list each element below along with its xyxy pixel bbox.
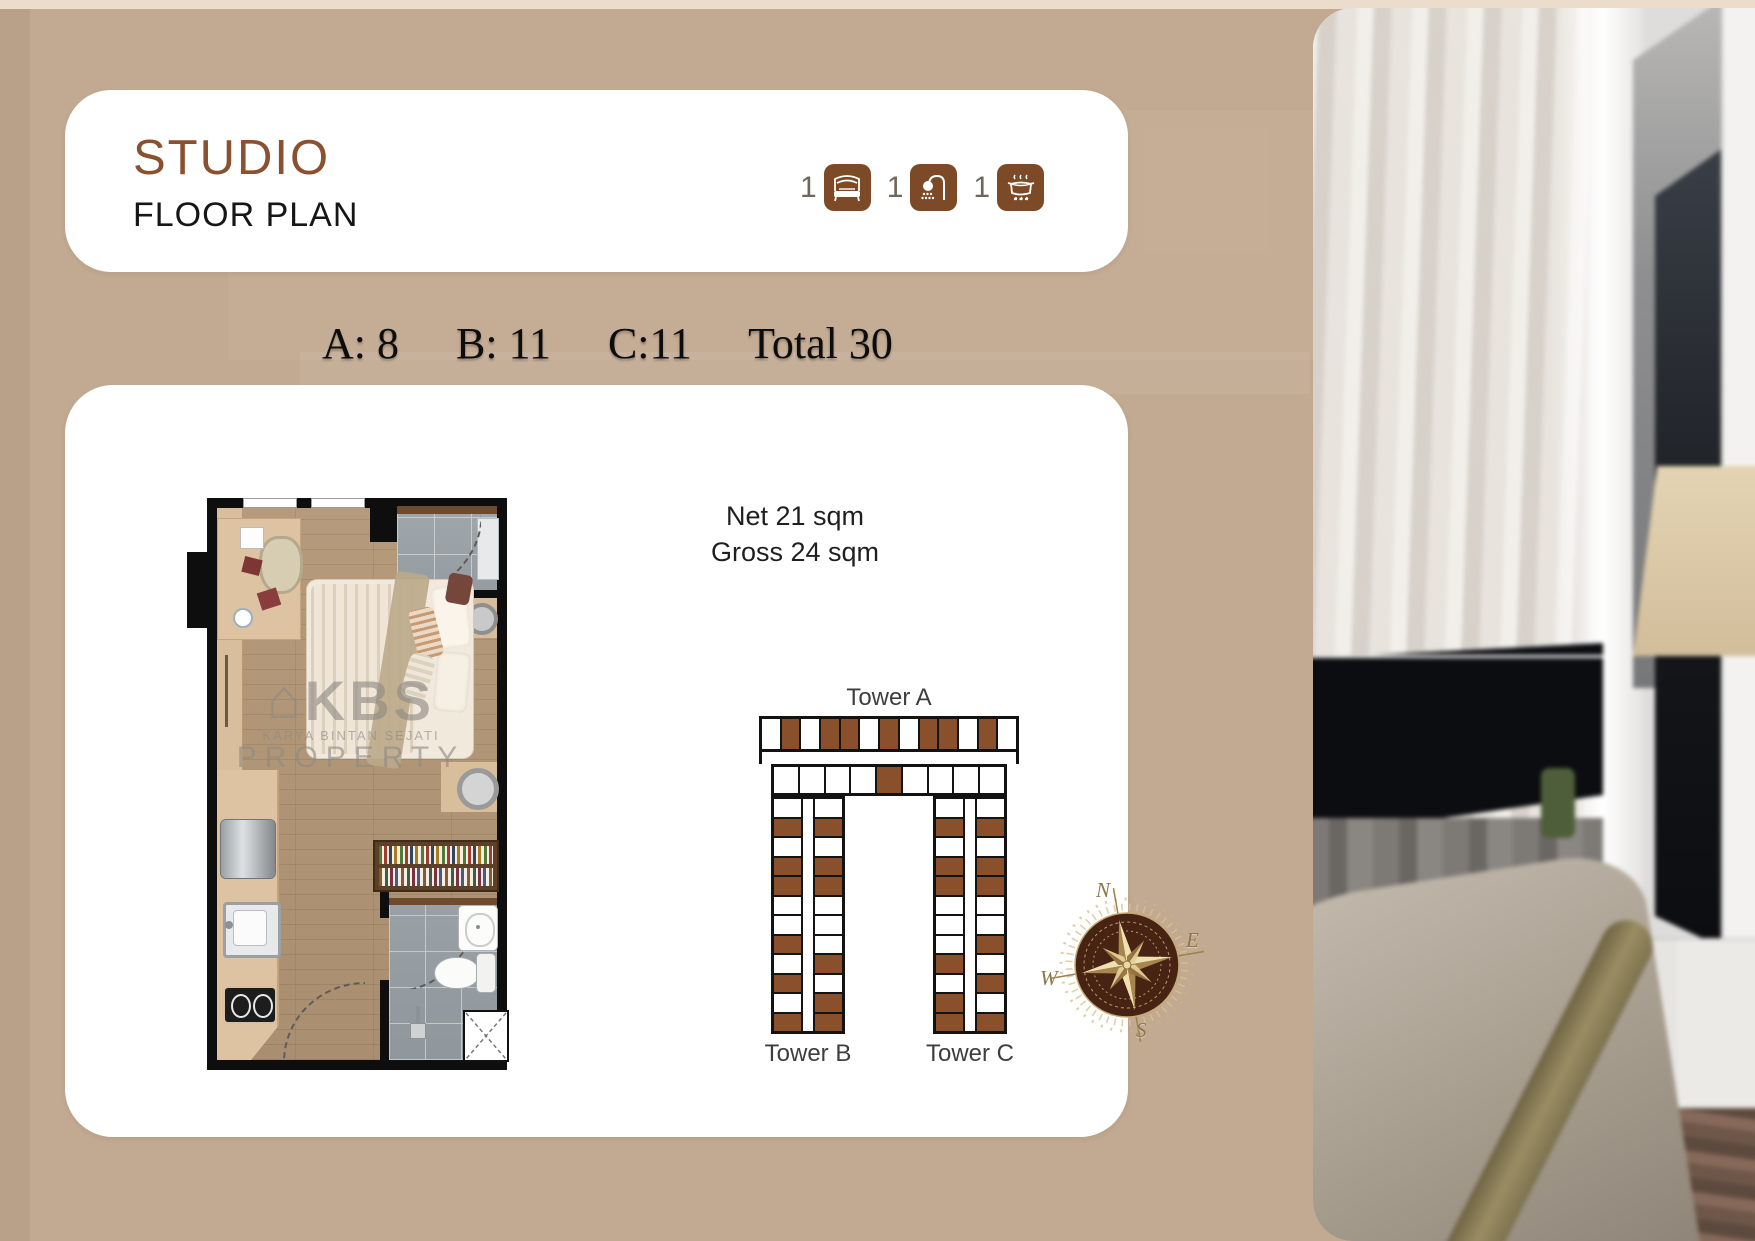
plan-shower-drain [411,1024,425,1038]
tower-unit-cell [977,838,1004,858]
tower-unit-cell [815,877,842,897]
tower-unit-cell [774,799,801,819]
tower-unit-cell [977,1014,1004,1032]
interior-photo-layers [1313,8,1755,1241]
tower-unit-cell [782,719,802,749]
brochure-page: STUDIO FLOOR PLAN 1 1 [0,0,1755,1241]
plan-bathroom-lintel [389,898,497,905]
feature-bedroom: 1 [800,164,871,211]
bathroom-count: 1 [887,171,904,205]
tower-unit-cell [959,719,979,749]
tower-unit-cell [977,877,1004,897]
compass-south: S [1136,1018,1147,1043]
plan-shower-stem [416,1006,420,1024]
header-card: STUDIO FLOOR PLAN 1 1 [65,90,1128,272]
plan-wall-stub [380,980,389,1070]
tower-unit-cell [774,767,800,793]
feature-bathroom: 1 [887,164,958,211]
tower-corridor [759,752,1019,764]
feature-kitchen: 1 [973,164,1044,211]
tower-a-label: Tower A [759,684,1019,712]
unit-count-total: Total 30 [748,319,893,368]
tower-unit-cell [936,1014,963,1032]
tower-unit-cell [977,819,1004,839]
tower-b-inner-col [813,799,842,1031]
tower-unit-cell [851,767,877,793]
tower-unit-cell [977,799,1004,819]
tower-unit-cell [980,767,1004,793]
tower-unit-cell [815,936,842,956]
tower-unit-cell [936,819,963,839]
tower-c-corridor [965,799,975,1031]
plan-dark-pillow [445,572,474,606]
bed-icon [824,164,871,211]
tower-unit-cell [815,975,842,995]
tower-unit-cell [929,767,955,793]
tower-unit-cell [977,936,1004,956]
plan-toilet-bowl [435,958,479,988]
tower-unit-cell [877,767,903,793]
tower-unit-cell [939,719,959,749]
tower-unit-cell [774,858,801,878]
compass-north: N [1096,878,1110,903]
tower-unit-cell [936,838,963,858]
plan-bath-sink [459,906,497,950]
tower-unit-cell [900,719,920,749]
tower-b-outer-col [774,799,803,1031]
tower-unit-cell [774,819,801,839]
plan-window [243,498,297,508]
tower-unit-cell [815,955,842,975]
tower-b-label: Tower B [744,1040,872,1068]
tower-unit-cell [977,994,1004,1014]
tower-b-corridor [803,799,813,1031]
tower-unit-cell [800,767,826,793]
plan-watermark: ⌂KBS KARYA BINTAN SEJATI PROPERTY [221,676,481,773]
tower-unit-cell [774,916,801,936]
tower-unit-cell [977,975,1004,995]
plan-bookshelf [375,842,497,890]
tower-unit-cell [815,897,842,917]
plan-kitchen-sink [223,902,281,958]
plan-toilet-tank [477,954,495,992]
tower-unit-cell [920,719,940,749]
tower-unit-cell [860,719,880,749]
plan-door-arc-main [281,980,365,1060]
tower-unit-cell [954,767,980,793]
tower-unit-cell [998,719,1016,749]
tower-unit-cell [815,838,842,858]
tower-unit-cell [936,936,963,956]
tower-b-leg [771,796,845,1034]
page-title: STUDIO [133,130,330,186]
plan-window [311,498,365,508]
plan-cup [233,608,253,628]
plan-fridge [221,820,275,878]
unit-count-b: B: 11 [456,319,551,368]
tower-unit-cell [903,767,929,793]
floor-plan: ⌂KBS KARYA BINTAN SEJATI PROPERTY [185,440,517,1080]
plan-chair [259,536,303,594]
tower-unit-cell [774,877,801,897]
plan-shaft [465,1012,507,1060]
tower-unit-cell [977,916,1004,936]
tower-unit-cell [977,955,1004,975]
tower-unit-cell [762,719,782,749]
tower-unit-cell [826,767,852,793]
tower-unit-cell [774,838,801,858]
tower-unit-cell [774,897,801,917]
tower-unit-cell [977,897,1004,917]
tower-unit-cell [774,955,801,975]
compass-west: W [1040,966,1058,991]
tower-unit-cell [841,719,861,749]
tower-unit-cell [880,719,900,749]
tower-unit-cell [936,897,963,917]
tower-a-row2 [771,764,1007,796]
tower-unit-cell [774,1014,801,1032]
tower-unit-cell [774,936,801,956]
tower-unit-cell [815,799,842,819]
tower-unit-cell [815,858,842,878]
tower-unit-cell [936,877,963,897]
kitchen-icon [997,164,1044,211]
unit-count-c: C:11 [608,319,692,368]
bedroom-count: 1 [800,171,817,205]
unit-count-a: A: 8 [322,319,399,368]
tower-c-label: Tower C [906,1040,1034,1068]
plan-stove [225,988,275,1022]
page-subtitle: FLOOR PLAN [133,196,358,235]
feature-list: 1 1 [800,164,1044,211]
tower-unit-cell [774,975,801,995]
tower-a-row [759,716,1019,752]
net-area: Net 21 sqm [640,498,950,534]
tower-unit-cell [936,955,963,975]
plan-papers [241,528,263,548]
compass-rose: N E W S [1032,870,1222,1060]
tower-unit-cell [821,719,841,749]
tower-unit-cell [815,994,842,1014]
plan-wall-pier [370,498,397,542]
watermark-brand: KBS [305,669,435,732]
watermark-line2: PROPERTY [221,743,481,773]
tower-unit-cell [815,819,842,839]
tower-unit-cell [979,719,999,749]
compass-icon [1032,870,1222,1060]
tower-c-inner-col [936,799,965,1031]
kitchen-count: 1 [973,171,990,205]
plan-wall-stub [380,892,389,918]
tower-unit-cell [801,719,821,749]
tower-unit-cell [936,994,963,1014]
background-edge-shade [0,9,30,1241]
tower-unit-cell [815,1014,842,1032]
plan-wall-bottom [207,1060,507,1070]
tower-c-outer-col [975,799,1004,1031]
interior-photo [1313,8,1755,1241]
tower-unit-cell [936,975,963,995]
tower-unit-cell [936,916,963,936]
tower-c-leg [933,796,1007,1034]
unit-summary: A: 8 B: 11 C:11 Total 30 [322,318,893,369]
compass-east: E [1186,928,1199,953]
plan-tray [457,768,499,810]
area-info: Net 21 sqm Gross 24 sqm [640,498,950,570]
shower-icon [910,164,957,211]
gross-area: Gross 24 sqm [640,534,950,570]
tower-unit-cell [977,858,1004,878]
tower-unit-cell [936,858,963,878]
tower-unit-cell [815,916,842,936]
tower-unit-cell [936,799,963,819]
tower-unit-cell [774,994,801,1014]
photo-plant [1541,768,1575,838]
